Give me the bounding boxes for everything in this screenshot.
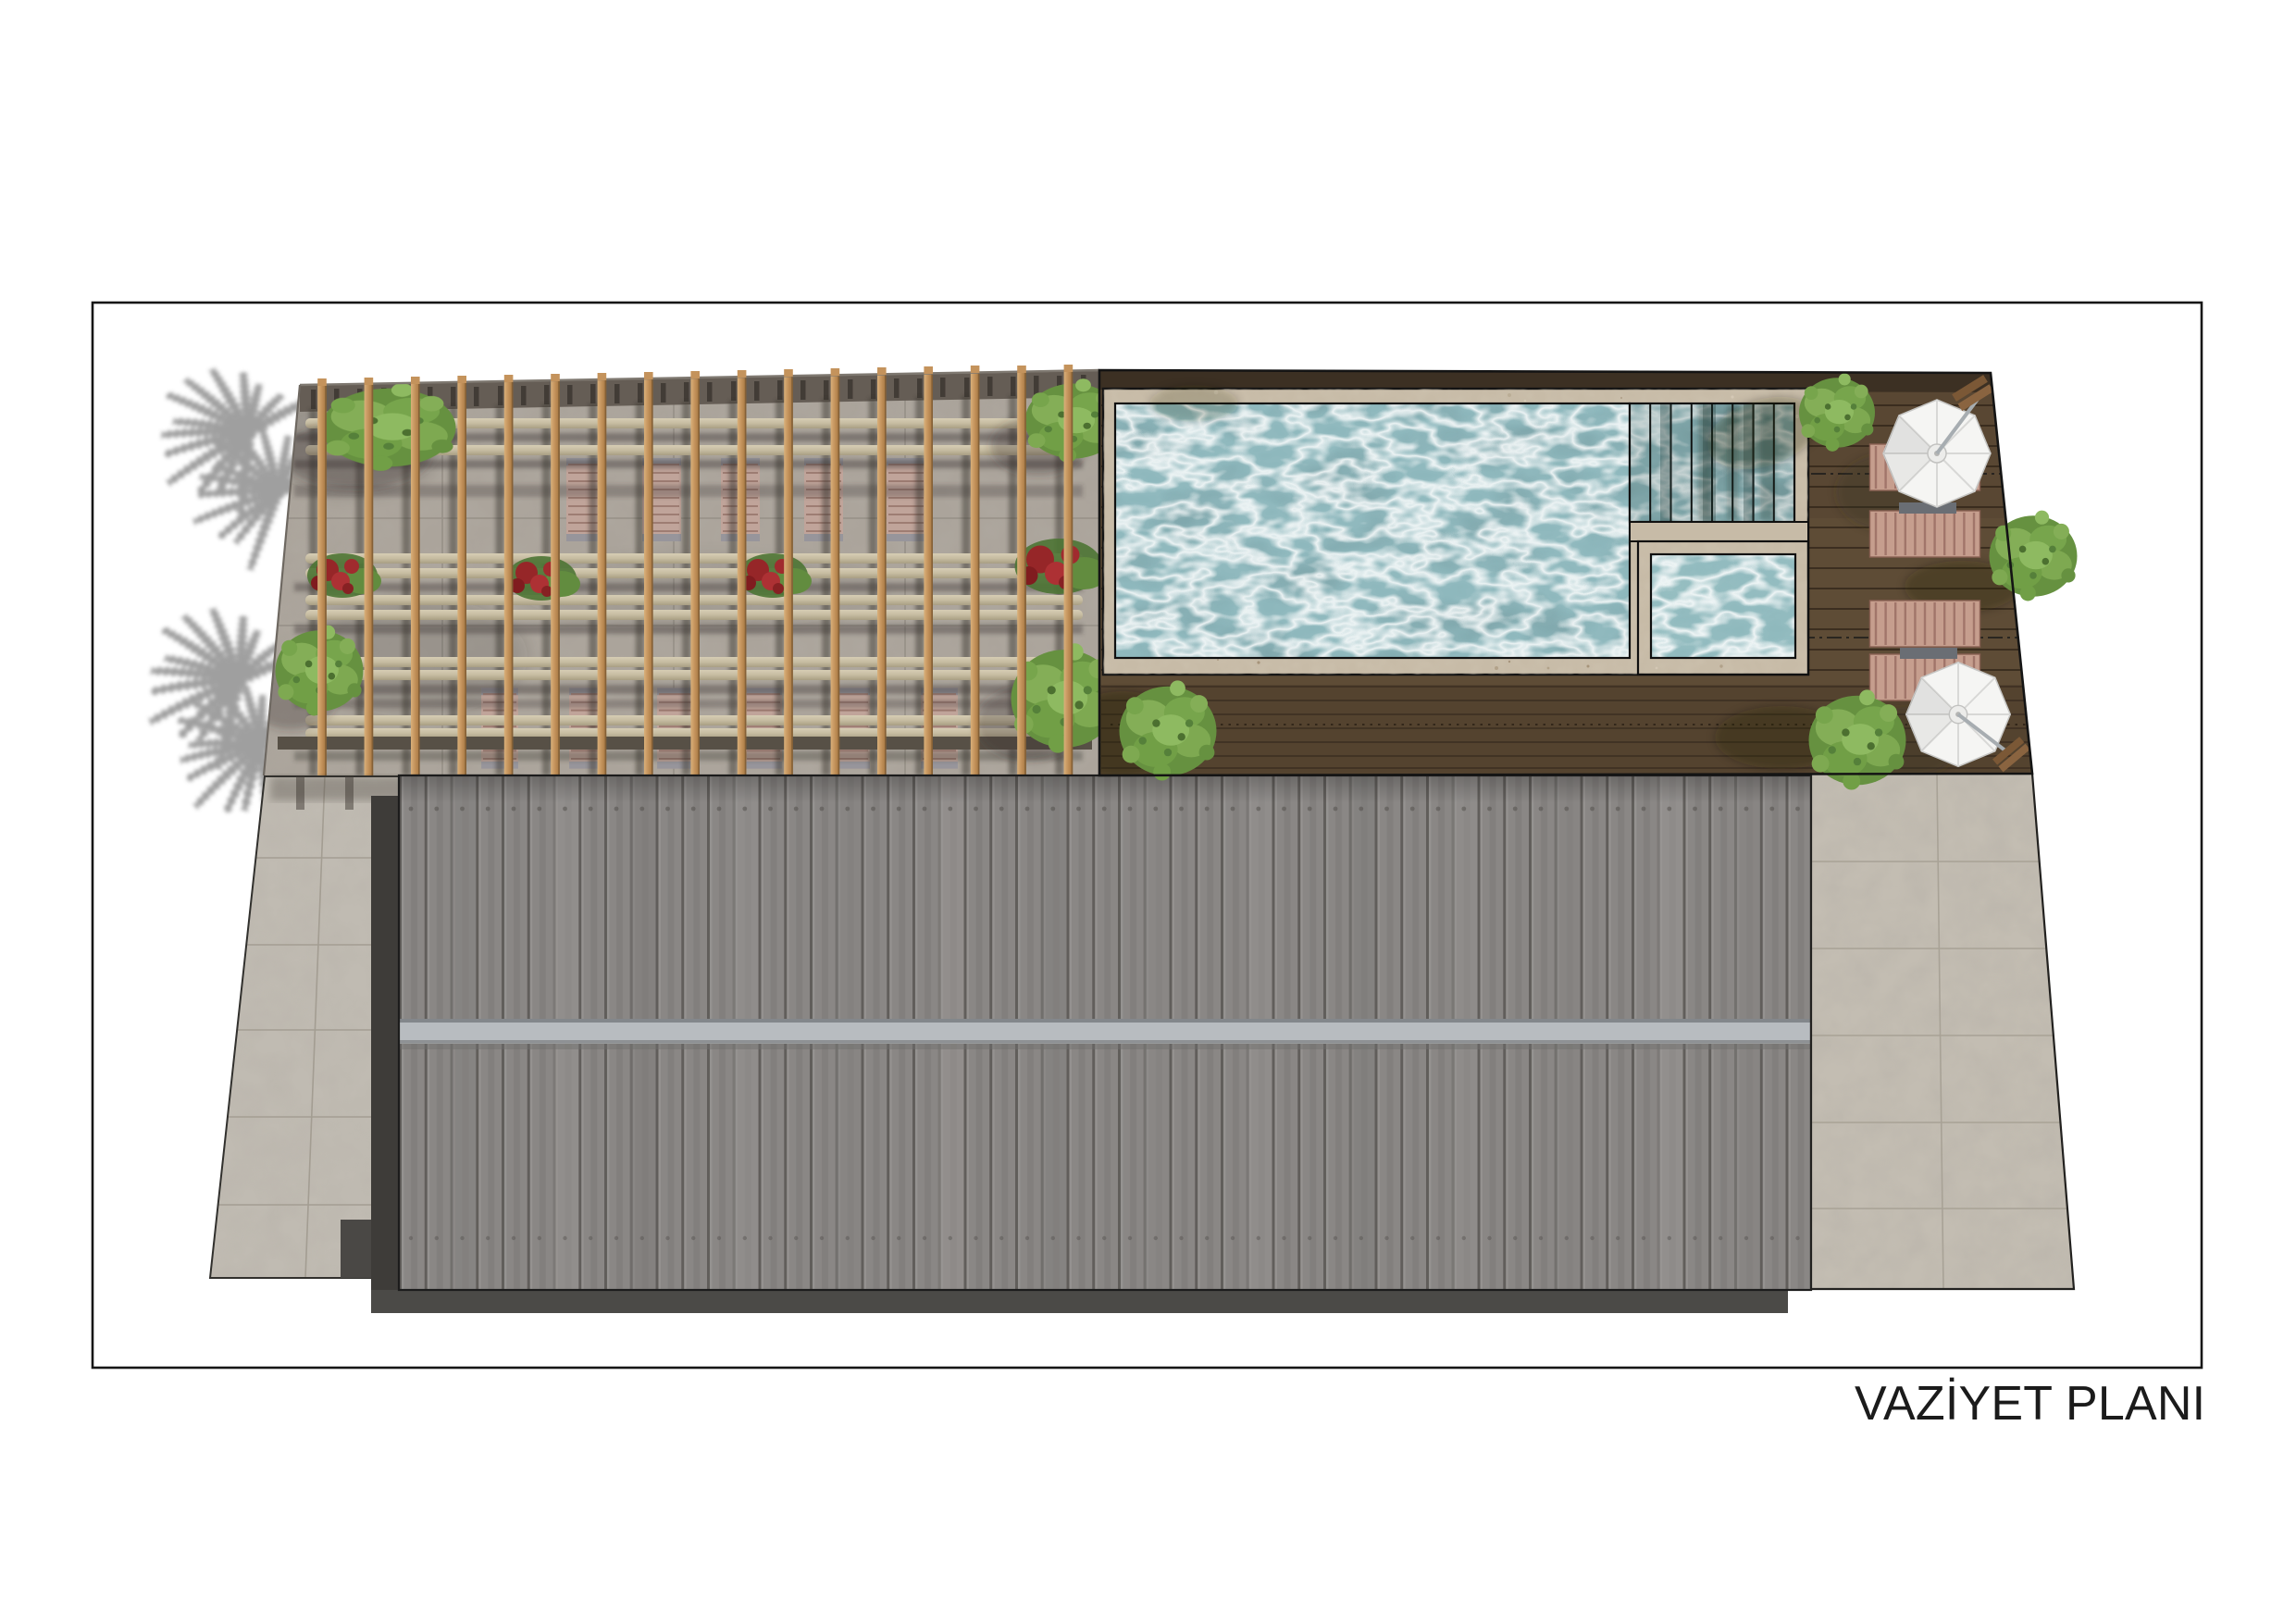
svg-text:VAZİYET PLANI: VAZİYET PLANI	[1855, 1377, 2205, 1431]
